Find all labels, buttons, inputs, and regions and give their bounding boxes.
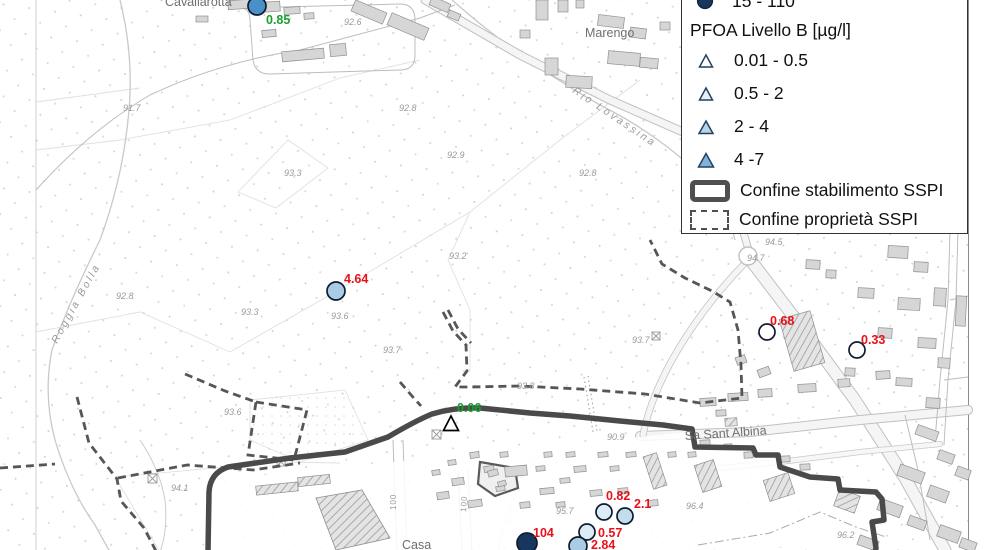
elevation-label: 93.6 — [224, 407, 242, 417]
building — [938, 358, 951, 369]
survey-marker — [148, 474, 157, 483]
building — [574, 465, 586, 472]
triangle-symbol — [696, 85, 716, 103]
building — [590, 489, 602, 496]
building — [845, 368, 855, 377]
building — [304, 13, 314, 20]
building — [640, 57, 659, 69]
monitoring-point-circle — [327, 282, 345, 300]
building — [452, 477, 465, 486]
legend-range-label: 4 -7 — [734, 149, 764, 170]
place-label: 100 — [389, 494, 398, 510]
map-viewport: 92.691.792.892.993.392.893.292.893.393.6… — [0, 0, 990, 550]
building — [926, 398, 941, 409]
place-label: Marengo — [585, 26, 634, 40]
building — [437, 491, 450, 500]
building — [876, 371, 890, 380]
building — [660, 22, 670, 30]
legend-boundary-label: Confine stabilimento SSPI — [740, 180, 943, 201]
building — [896, 378, 912, 387]
building — [536, 466, 545, 472]
monitoring-point-circle — [596, 504, 612, 520]
triangle-symbol — [696, 52, 716, 70]
legend-item-triangle-4: 4 -7 — [690, 143, 963, 176]
building — [888, 245, 909, 258]
elevation-label: 93.7 — [383, 345, 402, 355]
map-margin — [969, 0, 990, 550]
building — [626, 452, 636, 458]
building — [688, 452, 696, 458]
building — [432, 469, 441, 475]
building — [536, 0, 548, 20]
building — [826, 270, 836, 279]
elevation-label: 94.1 — [171, 483, 189, 493]
legend-item-triangle-1: 0.01 - 0.5 — [690, 44, 963, 77]
building — [558, 0, 568, 12]
point-value-label: 104 — [533, 526, 554, 540]
legend-range-label: 15 - 110 — [732, 0, 795, 12]
elevation-label: 93.3 — [284, 168, 302, 178]
building — [598, 452, 608, 458]
point-value-label: 2.84 — [591, 538, 615, 550]
elevation-label: 92.8 — [116, 291, 134, 301]
building — [744, 452, 753, 458]
point-value-label: 4.64 — [344, 272, 368, 286]
building — [566, 452, 575, 458]
point-value-label: 0.85 — [266, 13, 290, 27]
building — [955, 296, 967, 326]
building — [262, 29, 277, 37]
legend-item-triangle-2: 0.5 - 2 — [690, 77, 963, 110]
survey-marker — [432, 430, 441, 439]
place-label: 100 — [459, 495, 469, 512]
elevation-label: 95.7 — [556, 506, 575, 516]
building — [505, 465, 528, 477]
elevation-label: 92.9 — [447, 150, 465, 160]
monitoring-point-circle — [617, 508, 633, 524]
legend-item-circle-range: 15 - 110 — [690, 0, 963, 14]
building — [576, 0, 584, 8]
building — [545, 58, 558, 75]
elevation-label: 93.6 — [331, 311, 349, 321]
building — [560, 478, 570, 484]
legend-item-boundary-solid: Confine stabilimento SSPI — [690, 176, 963, 205]
building — [196, 16, 208, 22]
building — [500, 452, 508, 458]
building — [544, 452, 552, 458]
point-value-label: 0.33 — [861, 333, 885, 347]
building — [758, 389, 772, 398]
building — [520, 502, 530, 509]
building — [330, 43, 347, 56]
point-value-label: 0.68 — [770, 314, 794, 328]
legend-range-label: 0.5 - 2 — [734, 83, 784, 104]
triangle-symbol — [696, 151, 716, 169]
filled-circle-symbol — [696, 0, 714, 10]
elevation-label: 92.6 — [344, 17, 362, 27]
building — [798, 384, 816, 393]
elevation-label: 96.2 — [837, 530, 855, 540]
building — [800, 464, 810, 471]
elevation-label: 93.7 — [632, 335, 651, 345]
elevation-label: 94.7 — [747, 253, 766, 263]
place-label: Cavallarotta — [165, 0, 232, 9]
legend-range-label: 0.01 - 0.5 — [734, 50, 808, 71]
elevation-label: 92.8 — [579, 168, 597, 178]
elevation-label: 93.8 — [517, 381, 535, 391]
building — [607, 51, 640, 67]
building — [838, 379, 850, 388]
elevation-label: 94.5 — [765, 237, 784, 247]
legend-item-boundary-dashed: Confine proprietà SSPI — [690, 205, 963, 234]
building — [448, 459, 457, 465]
elevation-label: 92.8 — [399, 103, 417, 113]
solid-boundary-symbol — [690, 180, 730, 202]
point-value-label: 0.06 — [457, 401, 481, 415]
triangle-symbol — [696, 118, 716, 136]
survey-marker — [652, 332, 660, 340]
dashed-boundary-symbol — [690, 210, 729, 230]
point-value-label: 0.82 — [606, 489, 630, 503]
legend-section-title: PFOA Livello B [µg/l] — [690, 20, 963, 42]
map-legend: 15 - 110 PFOA Livello B [µg/l] 0.01 - 0.… — [681, 0, 968, 234]
building — [728, 392, 748, 401]
building — [914, 262, 929, 273]
building — [918, 338, 936, 349]
point-value-label: 2.1 — [634, 497, 651, 511]
legend-range-label: 2 - 4 — [734, 116, 769, 137]
building — [806, 260, 820, 270]
elevation-label: 93.3 — [241, 307, 259, 317]
building — [898, 297, 921, 310]
elevation-label: 91.7 — [123, 103, 142, 113]
building — [470, 451, 480, 458]
legend-boundary-label: Confine proprietà SSPI — [739, 209, 918, 230]
building — [520, 30, 530, 38]
legend-item-triangle-3: 2 - 4 — [690, 110, 963, 143]
elevation-label: 96.4 — [686, 501, 704, 511]
building — [934, 288, 947, 307]
building — [716, 410, 726, 417]
building — [468, 499, 483, 508]
elevation-label: 93.2 — [449, 251, 467, 261]
building — [668, 452, 676, 458]
elevation-label: 90.9 — [607, 432, 625, 442]
place-label: Casa — [402, 538, 431, 550]
monitoring-point-circle — [569, 537, 587, 550]
building — [540, 487, 554, 494]
building — [858, 288, 875, 299]
monitoring-point-circle — [248, 0, 266, 15]
building — [610, 466, 619, 472]
